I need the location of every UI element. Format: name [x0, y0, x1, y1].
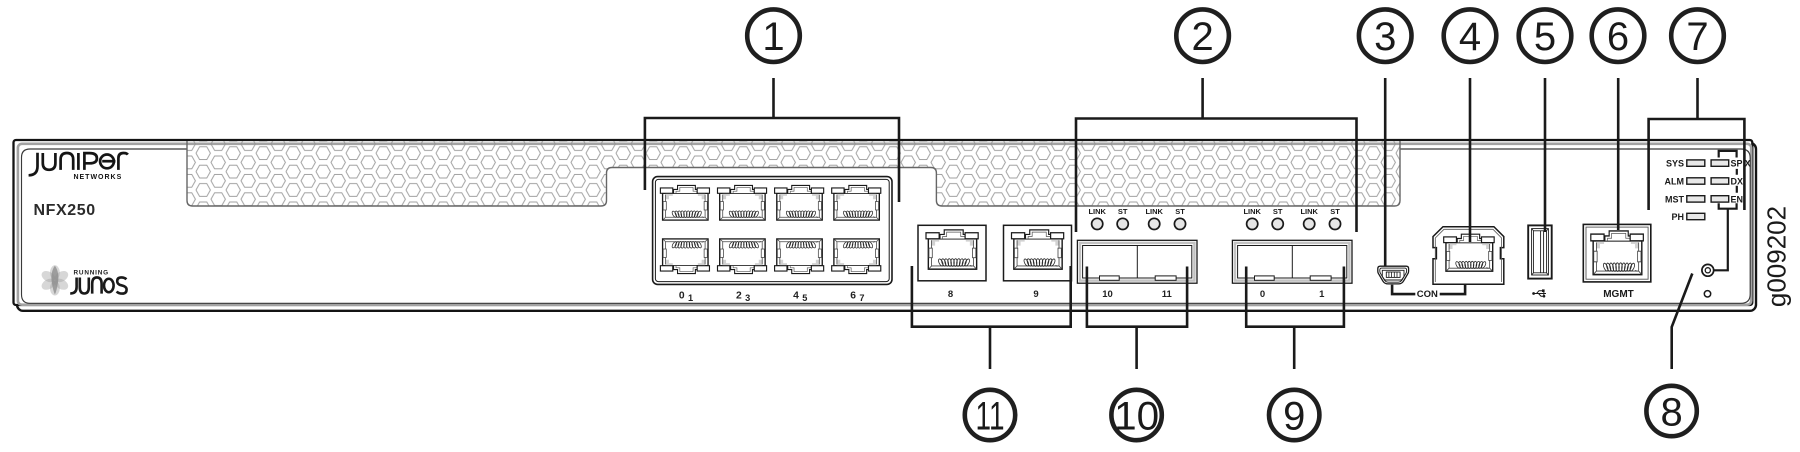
- svg-text:10: 10: [1114, 394, 1159, 438]
- svg-text:LINK: LINK: [1243, 207, 1261, 216]
- svg-text:11: 11: [1162, 289, 1173, 300]
- svg-text:8: 8: [948, 289, 953, 300]
- svg-text:EN: EN: [1731, 194, 1744, 204]
- svg-text:9: 9: [1033, 289, 1038, 300]
- svg-text:3: 3: [1374, 15, 1396, 59]
- svg-text:3: 3: [745, 293, 750, 303]
- svg-text:6: 6: [850, 291, 856, 302]
- svg-text:CON: CON: [1417, 289, 1438, 300]
- svg-text:DX: DX: [1731, 177, 1744, 187]
- svg-text:MST: MST: [1665, 194, 1685, 204]
- svg-text:7: 7: [1686, 15, 1708, 59]
- svg-text:1: 1: [1319, 289, 1325, 300]
- svg-text:0: 0: [1260, 289, 1265, 300]
- svg-text:4: 4: [1459, 15, 1481, 59]
- svg-text:MGMT: MGMT: [1603, 289, 1634, 300]
- svg-text:ALM: ALM: [1665, 177, 1685, 187]
- svg-text:0: 0: [679, 291, 685, 302]
- svg-text:SYS: SYS: [1666, 159, 1684, 169]
- svg-text:ST: ST: [1175, 207, 1185, 216]
- svg-text:5: 5: [802, 293, 807, 303]
- svg-text:NETWORKS: NETWORKS: [73, 174, 122, 181]
- svg-text:LINK: LINK: [1300, 207, 1318, 216]
- svg-text:7: 7: [859, 293, 864, 303]
- svg-text:2: 2: [736, 291, 742, 302]
- svg-text:LINK: LINK: [1088, 207, 1106, 216]
- svg-text:ST: ST: [1330, 207, 1340, 216]
- svg-text:g009202: g009202: [1762, 206, 1792, 307]
- svg-text:11: 11: [976, 394, 1005, 438]
- svg-text:8: 8: [1660, 390, 1682, 434]
- svg-text:1: 1: [688, 293, 693, 303]
- svg-text:RUNNING: RUNNING: [74, 270, 109, 277]
- svg-text:NFX250: NFX250: [34, 202, 96, 219]
- svg-text:10: 10: [1102, 289, 1113, 300]
- svg-text:6: 6: [1607, 15, 1629, 59]
- svg-text:PH: PH: [1671, 212, 1684, 222]
- svg-text:ST: ST: [1273, 207, 1283, 216]
- svg-text:2: 2: [1191, 15, 1213, 59]
- svg-text:1: 1: [762, 15, 784, 59]
- svg-text:4: 4: [793, 291, 799, 302]
- svg-text:ST: ST: [1118, 207, 1128, 216]
- svg-text:LINK: LINK: [1145, 207, 1163, 216]
- svg-text:9: 9: [1283, 394, 1305, 438]
- svg-text:5: 5: [1534, 15, 1556, 59]
- svg-text:SP: SP: [1731, 159, 1743, 169]
